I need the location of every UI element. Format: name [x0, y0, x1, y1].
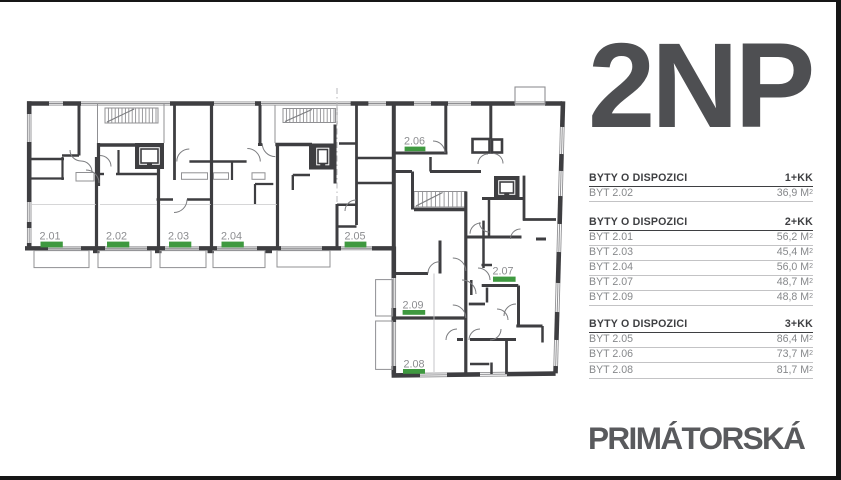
- svg-text:2.05: 2.05: [345, 231, 366, 243]
- svg-text:2.02: 2.02: [106, 231, 127, 243]
- svg-text:2.03: 2.03: [168, 231, 189, 243]
- svg-text:2.04: 2.04: [221, 231, 242, 243]
- svg-text:2.09: 2.09: [403, 300, 424, 312]
- svg-text:2.08: 2.08: [404, 359, 425, 371]
- svg-text:2.01: 2.01: [40, 231, 61, 243]
- svg-text:2.07: 2.07: [493, 266, 514, 278]
- svg-text:2.06: 2.06: [404, 136, 425, 148]
